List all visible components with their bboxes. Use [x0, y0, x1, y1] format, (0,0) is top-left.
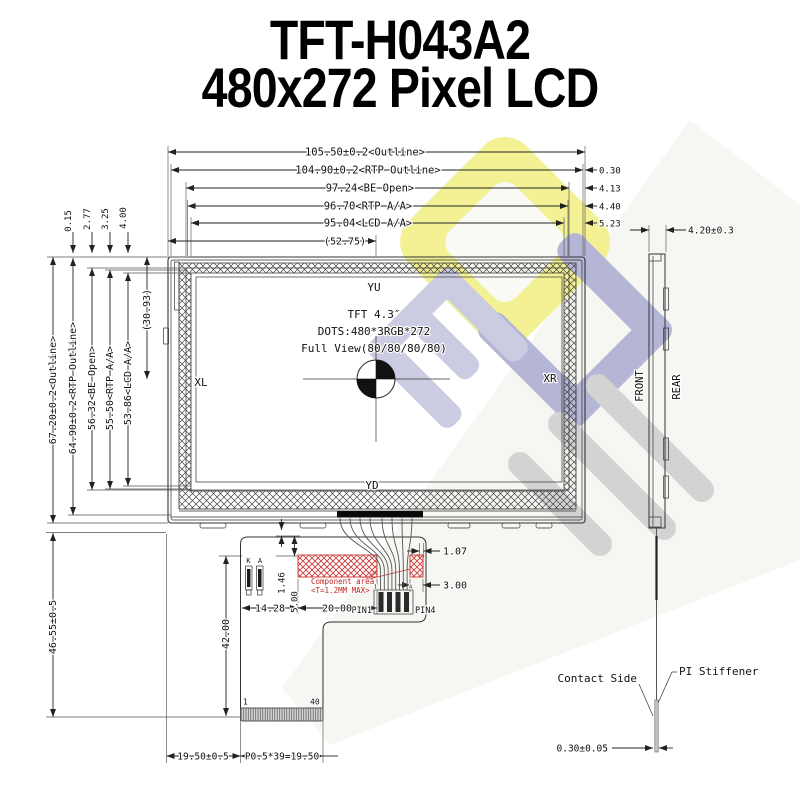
- offset-lcd-aa-t: 4.00: [119, 207, 129, 229]
- dim-300: 3.00: [443, 581, 467, 592]
- dim-146: 1.46: [278, 572, 288, 594]
- side-front-label: FRONT: [634, 370, 646, 402]
- watermark-logo: [282, 120, 800, 745]
- dim-2000: 20.00: [322, 604, 352, 615]
- display-view: Full View(80/80/80/80): [301, 342, 447, 355]
- pin4-label: PIN4: [415, 606, 435, 616]
- dim-1950: 19.50±0.5: [177, 752, 228, 763]
- offset-be-t: 2.77: [83, 208, 93, 230]
- dim-1428: 14.28: [255, 604, 285, 615]
- offset-lcd-aa-r: 5.23: [599, 220, 621, 230]
- dim-4200: 42.00: [221, 619, 232, 649]
- label-xl: XL: [194, 376, 208, 389]
- dim-rtp-aa-h: 55.50<RTP A/A>: [105, 346, 116, 430]
- contact-strip-hatch: [241, 708, 324, 721]
- offset-rtp-t: 0.15: [64, 210, 74, 232]
- fpc-bond-bar: [337, 511, 423, 518]
- pi-stiffener-label: PI Stiffener: [679, 665, 759, 678]
- dim-center-h: (30.93): [142, 289, 153, 331]
- left-edge-slot: [175, 262, 180, 310]
- offset-rtp-aa-t: 3.25: [101, 208, 111, 230]
- display-dots: DOTS:480*3RGB*272: [318, 325, 431, 338]
- offset-rtp-r: 0.30: [599, 167, 621, 177]
- pi-stiffener-leader: [658, 672, 677, 703]
- vertical-dimension-labels: 67.20±0.2<Outline> 64.90±0.2<RTP Outline…: [48, 207, 153, 454]
- pin-k-label: K: [246, 557, 251, 565]
- dim-be-open-h: 56.32<BE Open>: [87, 346, 98, 430]
- contact-side-leader: [639, 684, 653, 716]
- backlight-pins: K A: [246, 557, 264, 595]
- dim-be-open-w: 97.24<BE Open>: [326, 183, 415, 195]
- pad-first-label: 1: [243, 698, 248, 707]
- dim-pitch: P0.5*39=19.50: [245, 752, 320, 763]
- dim-lcd-aa-w: 95.04<LCD A/A>: [324, 218, 413, 230]
- component-area-label1: Component area: [311, 577, 374, 586]
- title-line2: 480x272 Pixel LCD: [202, 56, 599, 119]
- stiffener-thickness-label: 0.30±0.05: [557, 744, 608, 755]
- pad-last-label: 40: [310, 698, 320, 707]
- offset-rtp-aa-r: 4.40: [599, 203, 621, 213]
- contact-side-label: Contact Side: [558, 672, 637, 685]
- offset-be-r: 4.13: [599, 185, 621, 195]
- label-yd: YD: [365, 479, 378, 492]
- side-thickness-label: 4.20±0.3: [688, 226, 734, 237]
- dim-lcd-aa-h: 53.86<LCD A/A>: [123, 341, 134, 425]
- pin1-label: PIN1: [352, 606, 372, 616]
- right-offset-labels: 0.30 4.13 4.40 5.23: [599, 167, 621, 230]
- display-size: TFT 4.3″: [348, 308, 401, 321]
- dim-4655: 46.55±0.5: [48, 600, 59, 654]
- dim-center-w: (52.75): [324, 237, 366, 248]
- dim-outline-h: 67.20±0.2<Outline>: [48, 336, 59, 444]
- dim-rtp-outline-h: 64.90±0.2<RTP Outline>: [68, 322, 79, 454]
- component-area-label2: <T=1.2MM MAX>: [311, 586, 370, 595]
- label-xr: XR: [543, 372, 557, 385]
- dim-107: 1.07: [443, 547, 467, 558]
- dim-rtp-aa-w: 96.70<RTP A/A>: [324, 201, 413, 213]
- lcd-spec-drawing: TFT-H043A2 480x272 Pixel LCD YU TFT 4.3″…: [0, 0, 800, 800]
- pin-a-label: A: [258, 557, 263, 565]
- component-area-main: [298, 555, 377, 577]
- side-stiffener-strip: [655, 700, 658, 752]
- dim-outline-w: 105.50±0.2<Outline>: [305, 147, 425, 159]
- drawing-sheet: TFT-H043A2 480x272 Pixel LCD YU TFT 4.3″…: [0, 0, 800, 800]
- component-area-small: [410, 555, 423, 577]
- dim-rtp-outline-w: 104.90±0.2<RTP Outline>: [295, 165, 440, 177]
- label-yu: YU: [367, 281, 380, 294]
- dim-500: 5.00: [291, 591, 301, 613]
- pin1-small-label: 1: [374, 585, 377, 591]
- side-rear-label: REAR: [671, 374, 683, 400]
